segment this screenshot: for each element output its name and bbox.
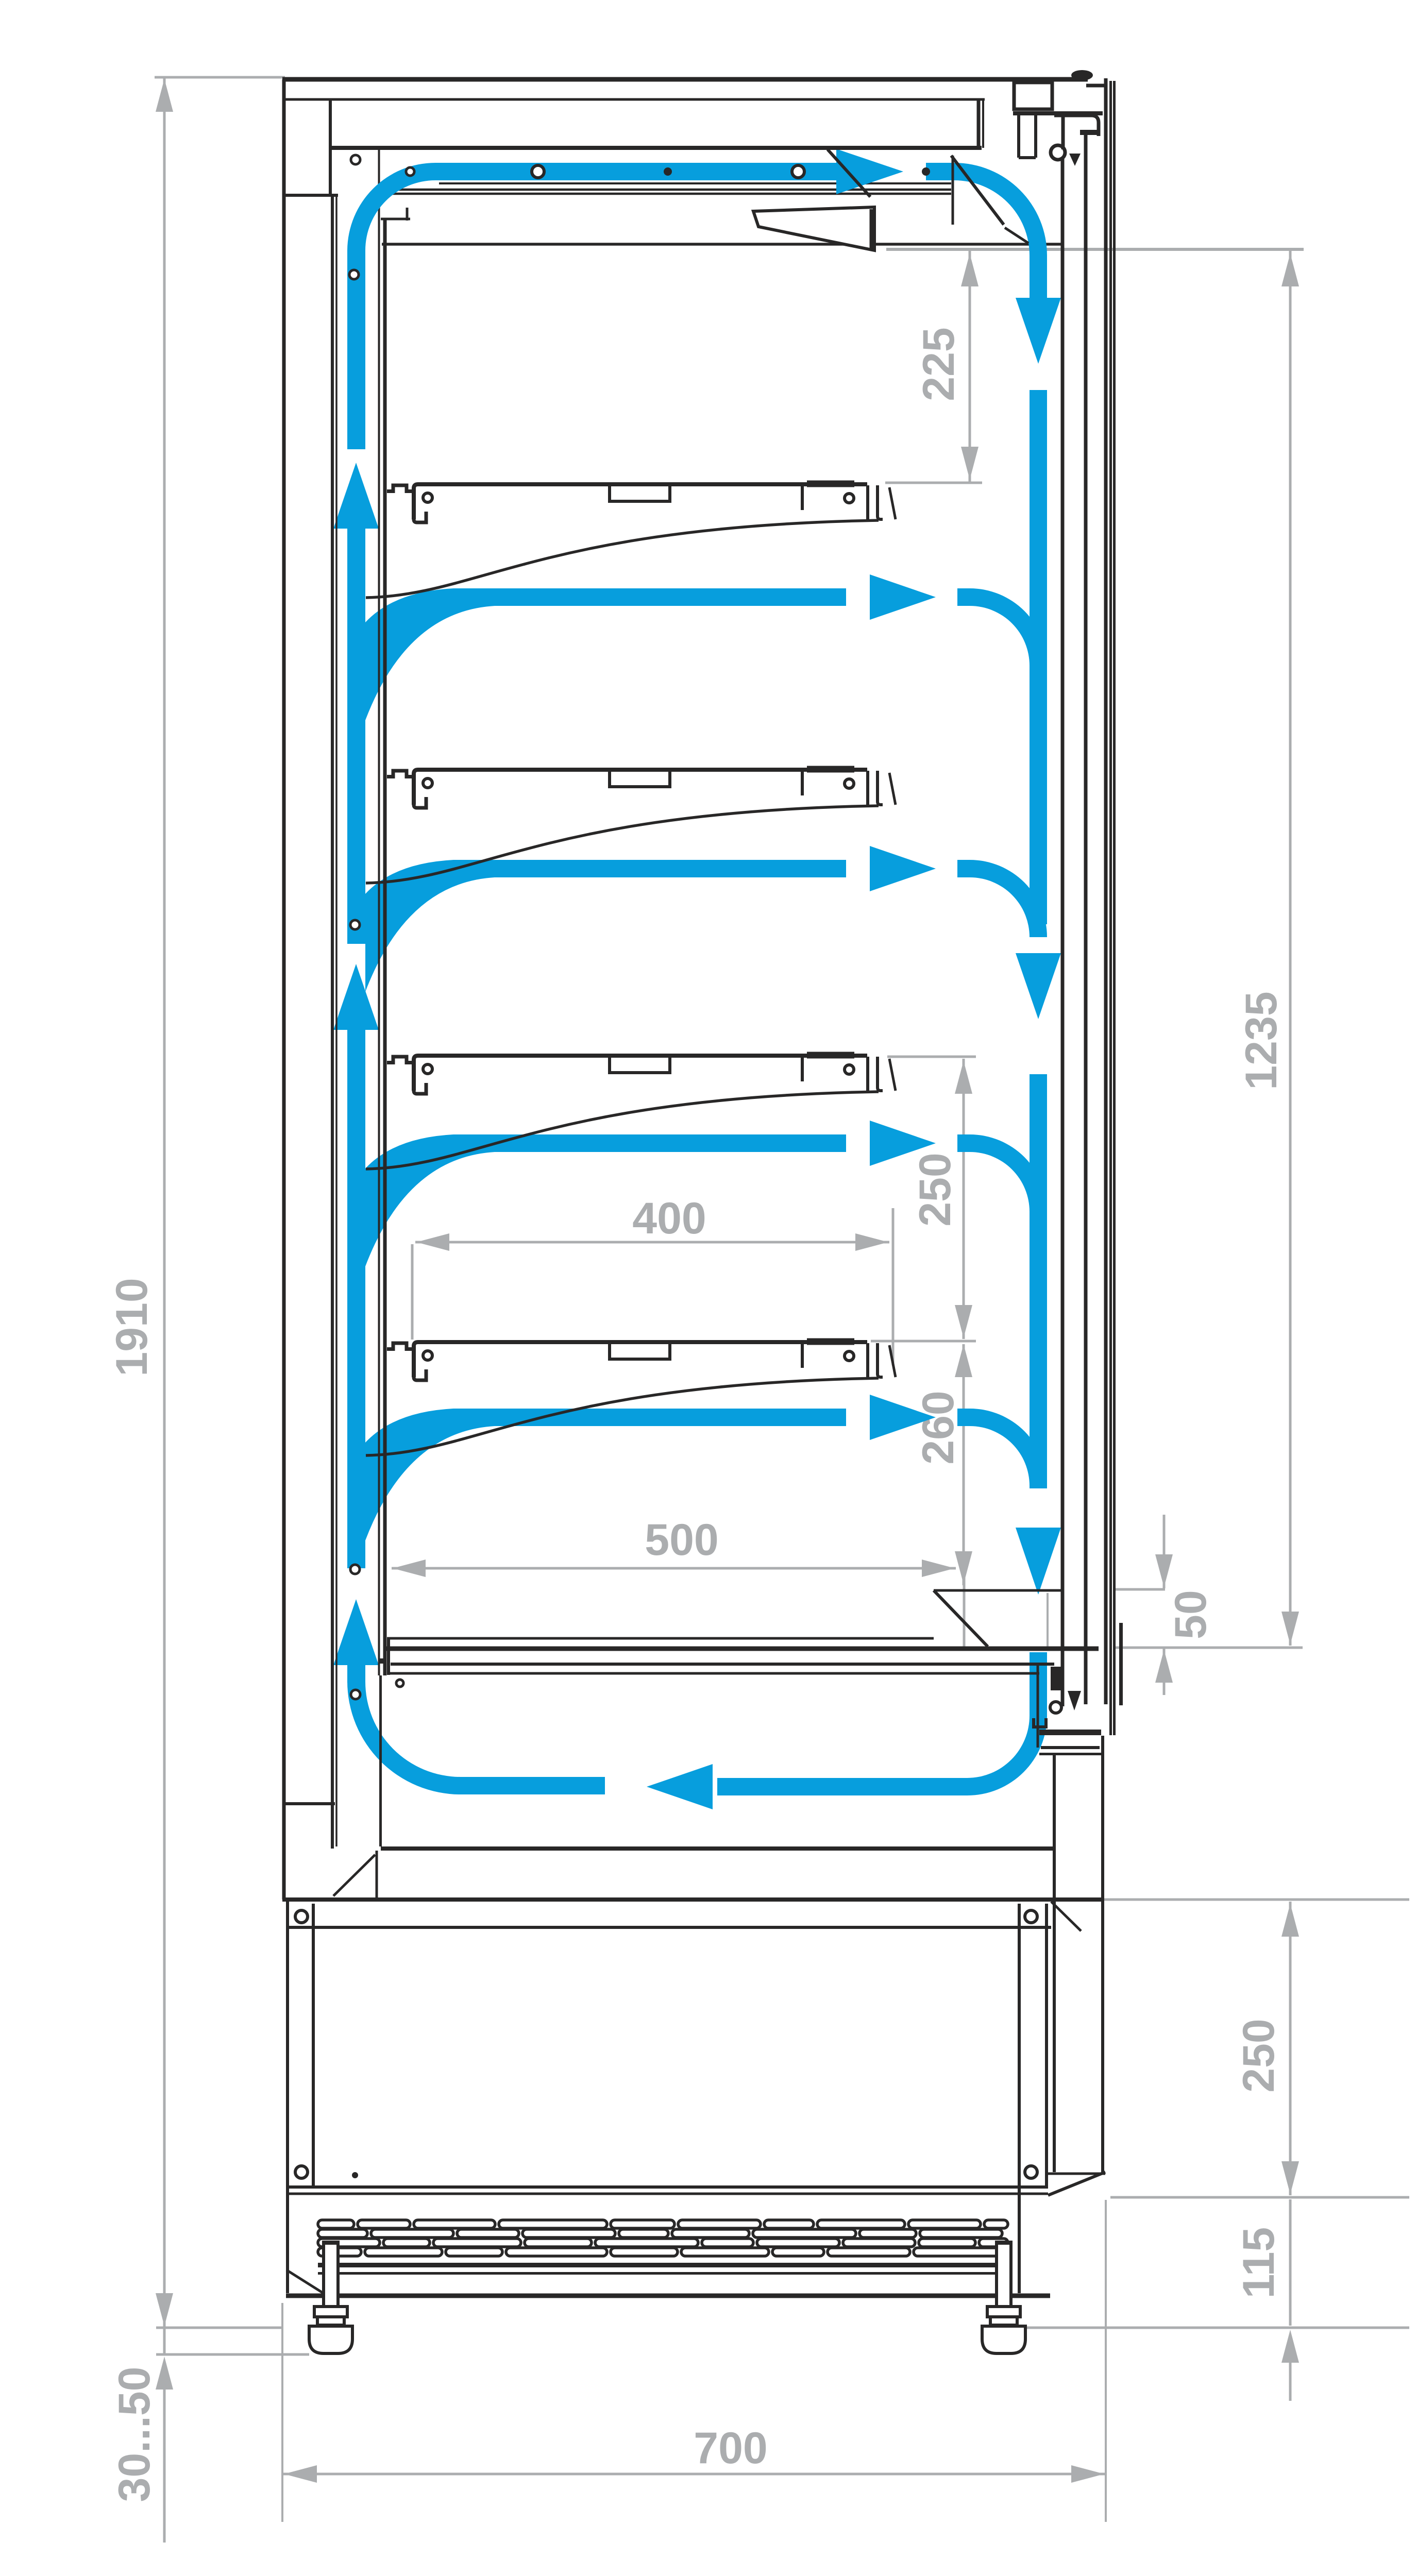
svg-text:30...50: 30...50 (110, 2367, 159, 2502)
svg-text:400: 400 (632, 1194, 706, 1243)
svg-text:225: 225 (914, 327, 964, 401)
svg-text:50: 50 (1166, 1590, 1216, 1639)
svg-text:700: 700 (694, 2424, 768, 2473)
svg-text:260: 260 (914, 1391, 963, 1465)
svg-text:1910: 1910 (107, 1278, 157, 1376)
svg-text:1235: 1235 (1237, 991, 1286, 1090)
svg-text:115: 115 (1234, 2227, 1284, 2299)
svg-text:250: 250 (910, 1153, 960, 1227)
svg-text:250: 250 (1234, 2019, 1284, 2093)
svg-text:500: 500 (645, 1515, 719, 1565)
